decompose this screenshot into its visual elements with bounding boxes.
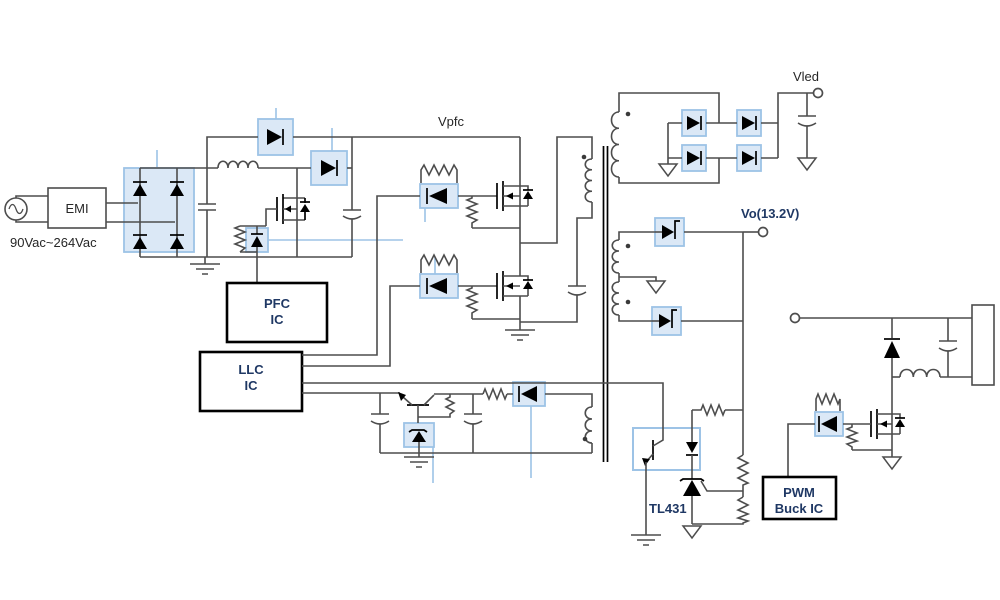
vpfc-label: Vpfc <box>438 114 465 129</box>
tl431-label: TL431 <box>649 501 687 516</box>
ac-source <box>5 196 48 222</box>
vo-terminal <box>759 228 768 237</box>
circuit-diagram: EMI 90Vac~264Vac <box>0 0 1000 600</box>
resonant-capacitor <box>520 202 592 322</box>
load-block <box>972 305 994 385</box>
earth-ground-icon <box>505 322 535 340</box>
primary-winding <box>582 155 592 202</box>
pfc-ic: PFC IC <box>227 283 327 342</box>
schematic-canvas: EMI 90Vac~264Vac <box>0 0 1000 600</box>
vled-label: Vled <box>793 69 819 84</box>
pfc-gate-network <box>235 209 277 283</box>
llc-ic: LLC IC <box>200 352 302 411</box>
pfc-ic-label1: PFC <box>264 296 291 311</box>
llc-high-side-mosfet <box>497 137 533 276</box>
vled-output-capacitor <box>798 93 816 158</box>
winding-dot <box>582 155 587 160</box>
aux-supply <box>302 386 592 467</box>
input-capacitor <box>198 168 216 257</box>
winding-dot <box>626 300 631 305</box>
earth-ground-icon <box>190 257 220 274</box>
buck-stage: PWM Buck IC <box>763 305 994 519</box>
llc-ic-label2: IC <box>245 378 259 393</box>
led-resistor <box>692 405 743 415</box>
vcc-resistor <box>483 389 513 399</box>
winding-dot <box>583 437 588 442</box>
transformer-core <box>604 146 608 462</box>
winding-dot <box>626 244 631 249</box>
vled-terminal <box>814 89 823 98</box>
ground-icon <box>659 164 677 176</box>
pwm-ic-label2: Buck IC <box>775 501 824 516</box>
buck-inductor <box>892 370 972 378</box>
llc-ic-label1: LLC <box>238 362 264 377</box>
bulk-capacitor <box>343 210 361 257</box>
ground-icon <box>883 457 901 469</box>
pfc-mosfet <box>277 168 310 257</box>
pwm-ic-label1: PWM <box>783 485 815 500</box>
tl431-shunt-regulator <box>680 479 743 524</box>
vled-secondary-winding <box>612 112 631 177</box>
ground-icon <box>647 281 665 293</box>
bridge-rectifier-highlight <box>124 168 194 252</box>
buck-input-terminal <box>791 314 800 323</box>
vo-label: Vo(13.2V) <box>741 206 799 221</box>
ground-icon <box>683 526 701 538</box>
pfc-ic-label2: IC <box>271 312 285 327</box>
aux-winding <box>583 407 592 443</box>
vled-output-stage: Vled <box>612 69 823 183</box>
llc-low-side-mosfet <box>497 271 533 322</box>
vcc-capacitor1 <box>371 393 389 453</box>
transformer <box>582 146 608 462</box>
vcc-capacitor2 <box>464 394 482 453</box>
ground-icon <box>798 158 816 170</box>
series-pass-transistor <box>398 392 434 405</box>
gate-resistor <box>235 226 245 252</box>
pfc-inductor <box>218 161 258 168</box>
freewheel-diode <box>884 318 900 377</box>
vo-output-stage: Vo(13.2V) <box>612 206 799 455</box>
low-side-gate-network <box>421 255 520 319</box>
pwm-buck-ic: PWM Buck IC <box>763 477 836 519</box>
winding-dot <box>626 112 631 117</box>
feedback-wire <box>302 383 663 428</box>
emi-label: EMI <box>65 201 88 216</box>
buck-output-capacitor <box>939 318 957 377</box>
input-voltage-label: 90Vac~264Vac <box>10 235 97 250</box>
